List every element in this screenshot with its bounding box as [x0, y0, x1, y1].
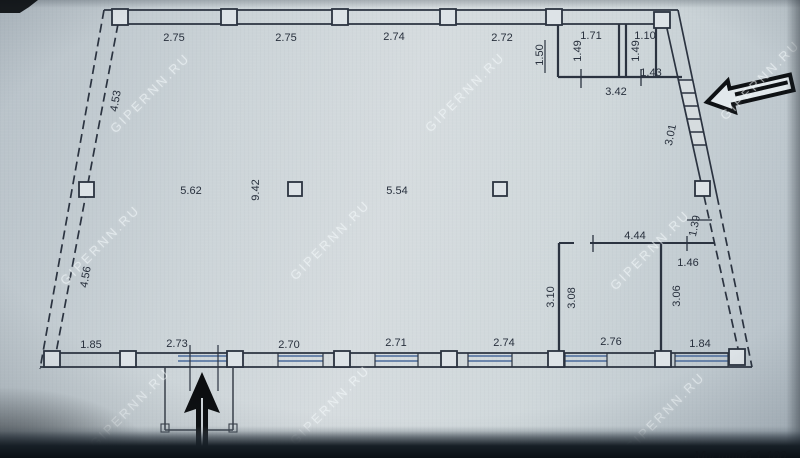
- right-wall-window: [679, 80, 707, 145]
- dim-left-lower: 4.56: [78, 265, 94, 288]
- dim-room-a-height: 1.49: [572, 40, 584, 61]
- dim-block-left-outer: 3.10: [545, 286, 557, 307]
- dim-bottom-4: 2.71: [385, 337, 406, 349]
- dim-top-4: 2.72: [491, 32, 512, 44]
- dim-room-b-height: 1.49: [630, 40, 642, 61]
- floor-plan-photo: 2.75 2.75 2.74 2.72 1.71 1.10 1.43 3.42 …: [0, 0, 800, 458]
- dim-room-b-width: 1.10: [634, 30, 655, 42]
- entrance-arrow-right: [703, 67, 795, 118]
- dim-bottom-3: 2.70: [278, 339, 299, 351]
- dim-bottom-6: 2.76: [600, 336, 621, 348]
- dim-block-top: 4.44: [624, 230, 645, 242]
- dim-room-left-height: 1.50: [534, 44, 546, 65]
- dimension-labels: 2.75 2.75 2.74 2.72 1.71 1.10 1.43 3.42 …: [78, 30, 710, 351]
- dim-block-left-inner: 3.08: [566, 287, 578, 308]
- scale-note: Масштаб 1:100: [694, 448, 786, 458]
- dim-room-a-width: 1.71: [580, 30, 601, 42]
- dim-rooms-total: 3.42: [605, 86, 626, 98]
- floor-plan-drawing: 2.75 2.75 2.74 2.72 1.71 1.10 1.43 3.42 …: [0, 0, 800, 458]
- dim-right-upper: 3.01: [663, 123, 679, 146]
- dim-top-1: 2.75: [163, 32, 184, 44]
- dim-top-2: 2.75: [275, 32, 296, 44]
- dim-hall-width-1: 5.62: [180, 185, 201, 197]
- dim-room-b-inner: 1.43: [640, 67, 661, 79]
- dim-hall-depth: 9.42: [250, 179, 262, 200]
- dim-bottom-2: 2.73: [166, 338, 187, 350]
- dim-bottom-1: 1.85: [80, 339, 101, 351]
- dim-hall-width-2: 5.54: [386, 185, 407, 197]
- dim-block-top-right: 1.46: [677, 257, 698, 269]
- dim-bottom-7: 1.84: [689, 338, 710, 350]
- dim-left-upper: 4.53: [108, 89, 124, 112]
- dim-top-3: 2.74: [383, 31, 404, 43]
- dim-right-mid: 1.39: [687, 214, 703, 237]
- dim-block-right: 3.06: [671, 285, 683, 306]
- dim-bottom-5: 2.74: [493, 337, 514, 349]
